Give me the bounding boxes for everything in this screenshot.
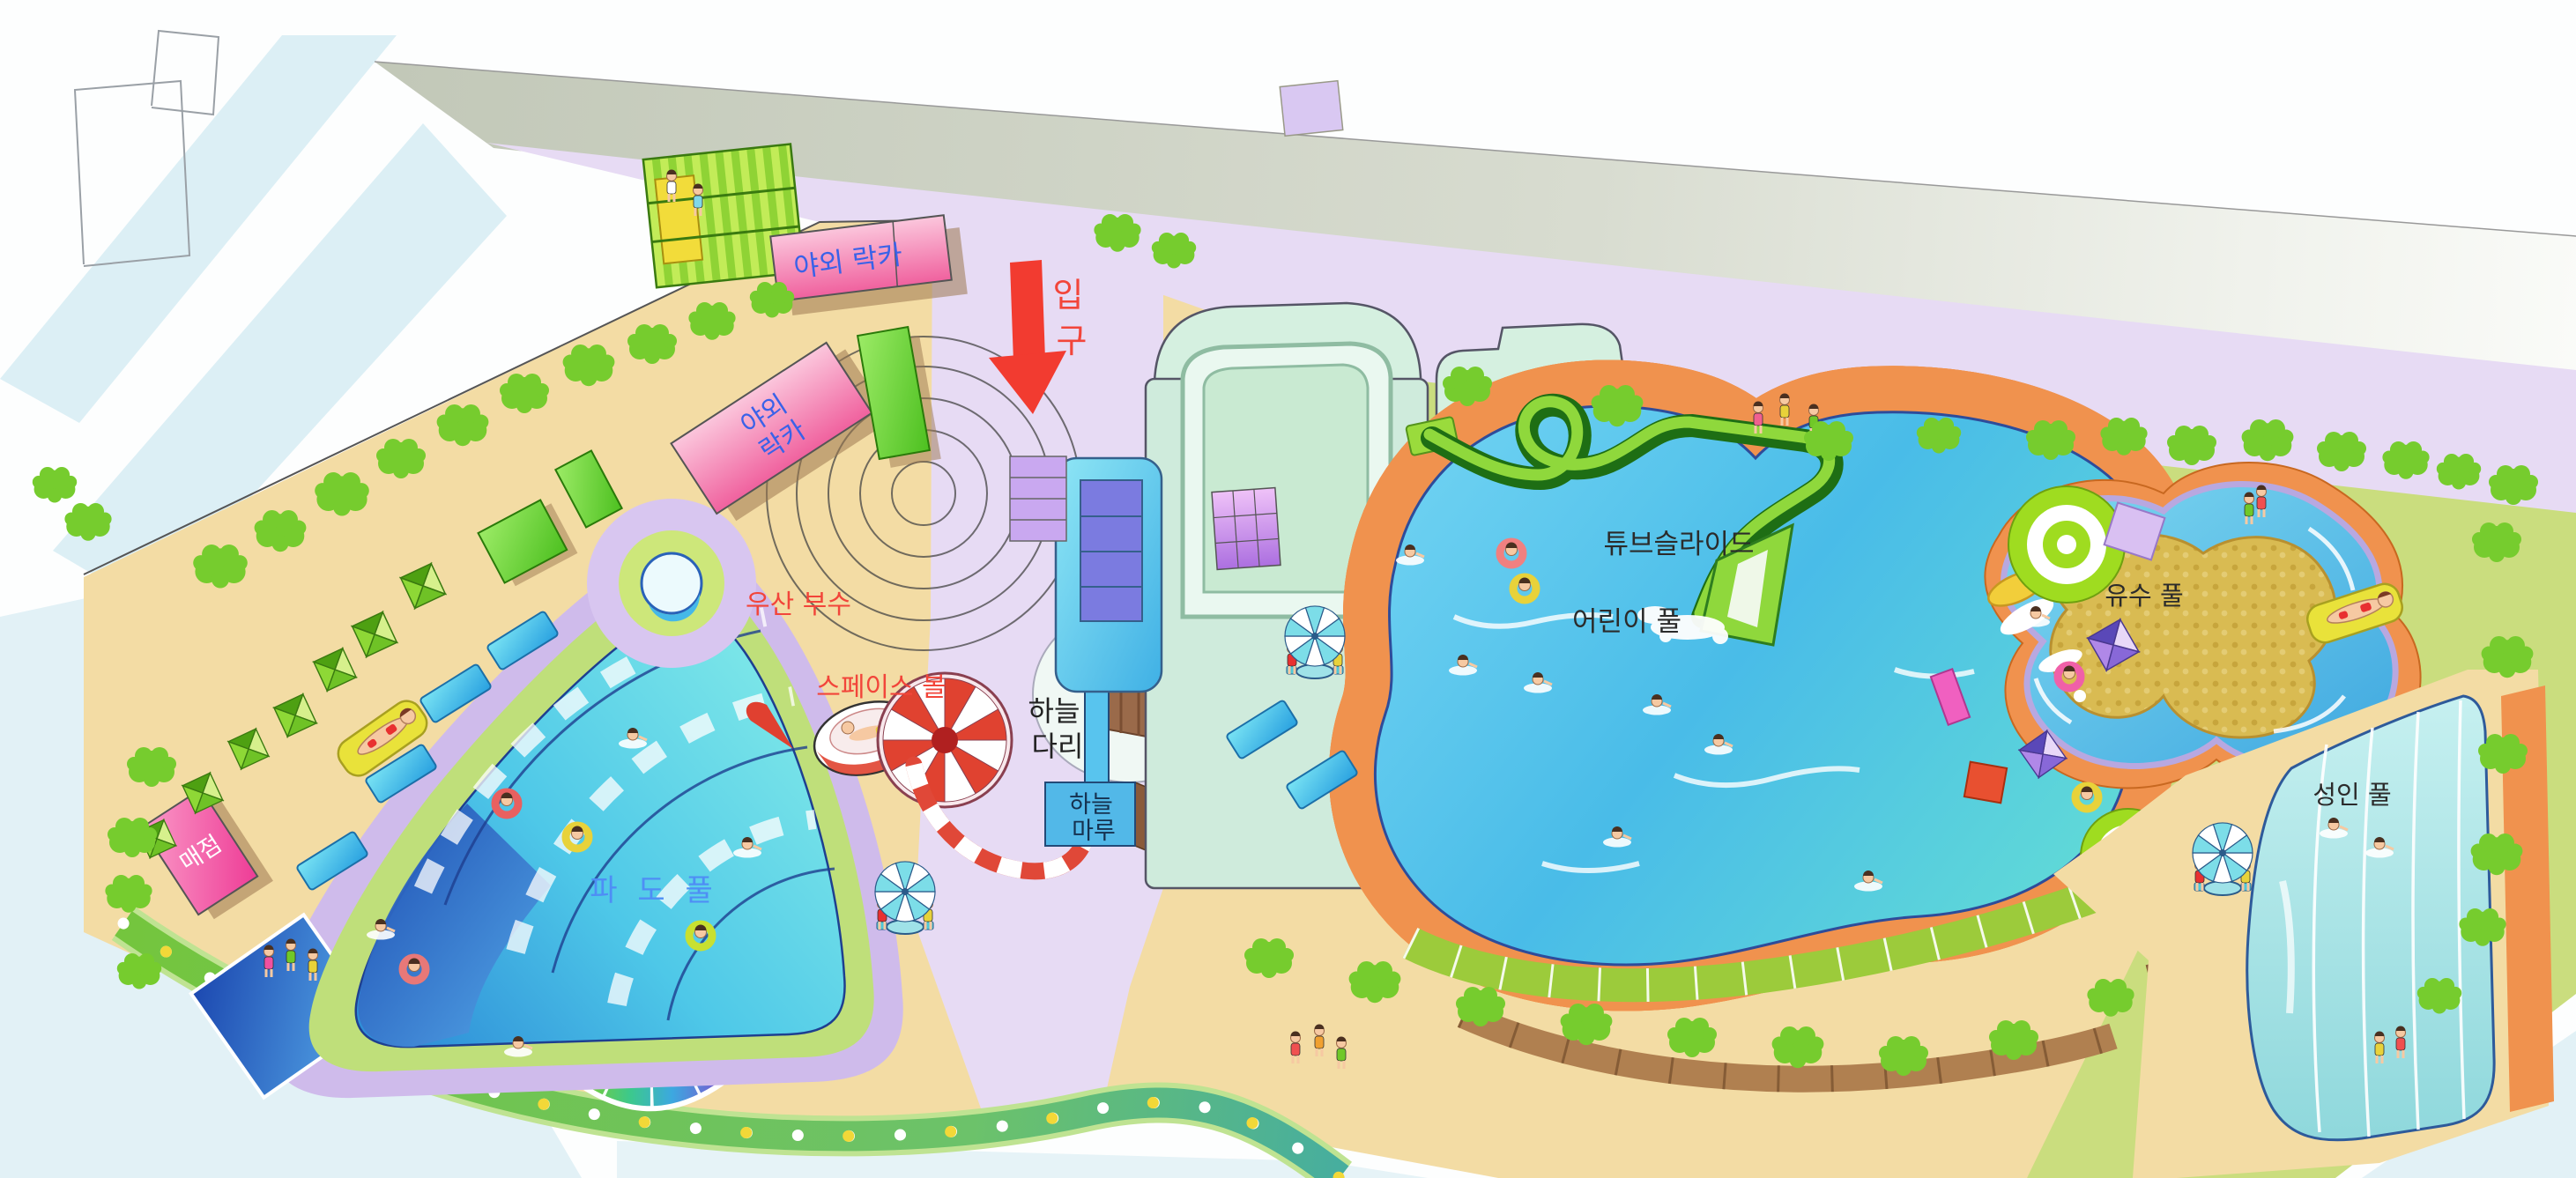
label-tube-slide: 튜브슬라이드	[1603, 529, 1754, 560]
swimmer-ring-icon	[403, 958, 426, 981]
label-space-ball: 스페이스 볼	[816, 672, 947, 703]
swimmer-ring-icon	[2075, 786, 2098, 809]
label-wave-pool: 파 도 풀	[590, 873, 717, 908]
small-lot-square	[1280, 81, 1342, 137]
swimmer-ring-icon	[689, 924, 712, 947]
swimmer-ring-icon	[1513, 577, 1536, 600]
label-adult-pool: 성인 풀	[2312, 780, 2391, 810]
parasol-icon	[2193, 823, 2253, 895]
swimmer-ring-icon	[495, 792, 518, 815]
water-park-map: 레인보우 빌리지 파 도 풀 우산 부수 스페이스 볼 하늘 다리 하늘 마루	[0, 0, 2576, 1178]
label-entrance-2: 구	[1057, 322, 1088, 360]
swimmer-ring-icon	[2058, 665, 2081, 688]
swimmer-ring-icon	[566, 826, 589, 848]
swimmer-ring-icon	[1500, 542, 1523, 565]
label-sky-maru-2: 마루	[1072, 818, 1116, 845]
label-entrance-1: 입	[1053, 276, 1084, 315]
label-sky-bridge-2: 다리	[1032, 730, 1084, 763]
parasol-icon	[875, 862, 935, 934]
label-umbrella-fountain: 우산 부수	[746, 589, 851, 620]
brick-path	[1212, 488, 1281, 570]
parasol-icon	[1285, 606, 1345, 678]
umbrella-fountain	[587, 499, 756, 668]
steps-left	[1010, 456, 1066, 541]
label-sky-bridge-1: 하늘	[1028, 694, 1080, 728]
label-children-pool: 어린이 풀	[1572, 606, 1681, 638]
label-lazy-river: 유수 풀	[2105, 581, 2183, 611]
label-sky-maru-1: 하늘	[1069, 791, 1113, 819]
deck-square	[1964, 762, 2007, 804]
